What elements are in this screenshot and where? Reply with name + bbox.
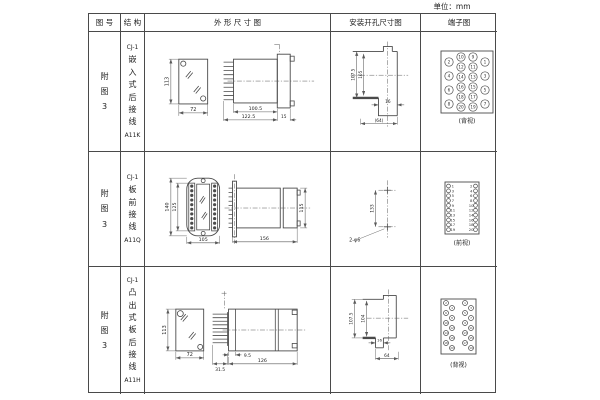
mounting-hole-icon — [201, 95, 206, 100]
terminal-pin — [474, 218, 478, 222]
terminal-number: 3 — [484, 73, 487, 78]
model-label: CJ-1 — [127, 44, 139, 51]
dim-label: 31.5 — [215, 367, 225, 373]
terminal-number: 11 — [469, 326, 473, 330]
terminal-diagram-a11h-cell: 2610141848121620159131737111519 (背视) — [421, 267, 497, 394]
terminal-number: 6 — [445, 311, 447, 315]
terminal-number: 5 — [484, 87, 487, 92]
dim-label: 9.5 — [244, 353, 251, 359]
header-outline-dims: 外 形 尺 寸 图 — [145, 14, 331, 32]
terminal-pin — [474, 227, 478, 231]
structure-cell: CJ-1 嵌入式后接线 A11K — [121, 32, 145, 152]
manual-page: 单位：mm 图 号 结 构 外 形 尺 寸 图 安装开孔尺寸图 端子图 附图3 … — [0, 0, 600, 400]
figure-no-cell: 附图3 — [89, 267, 121, 394]
terminal-pin — [447, 193, 451, 197]
mounting-drawing-a11q: 133 2-φ6 — [331, 152, 420, 267]
dim-label: 15 — [281, 114, 287, 120]
outline-drawing-a11h-cell: 113 72 9.5 31.5 — [145, 267, 331, 394]
header-figure-no: 图 号 — [89, 14, 121, 32]
dimension-table: 图 号 结 构 外 形 尺 寸 图 安装开孔尺寸图 端子图 附图3 CJ-1 嵌… — [88, 13, 496, 393]
terminal-number: 1 — [484, 59, 487, 64]
terminal-number: 16 — [450, 336, 454, 340]
dim-label: 104 — [361, 314, 367, 322]
terminal-pin — [474, 203, 478, 207]
terminal-number: 19 — [450, 227, 455, 232]
dim-label: 107.5 — [351, 68, 357, 80]
terminal-grid: 2468101214161820911131517191357 — [445, 52, 489, 110]
terminal-number: 17 — [463, 341, 467, 345]
model-label: CJ-1 — [127, 277, 139, 284]
mounting-hole-icon — [177, 311, 183, 317]
mounting-hole-icon — [181, 61, 186, 66]
view-label: (背视) — [459, 117, 476, 125]
dim-label: 72 — [190, 107, 196, 113]
mounting-hole-icon — [201, 231, 205, 235]
dim-label: 126 — [258, 358, 267, 364]
terminal-diagram-a11q: 1234567891011121314151617181920 (前视) — [421, 152, 497, 267]
header-structure: 结 构 — [121, 14, 145, 32]
dim-label: 140 — [165, 202, 171, 211]
terminal-diagram-a11k-cell: 2468101214161820911131517191357 (背视) — [421, 32, 497, 152]
dim-label: 115 — [299, 203, 305, 212]
dim-label: 107.5 — [349, 312, 355, 324]
terminal-number: 10 — [458, 54, 464, 59]
outline-drawing-a11k-cell: 113 72 100.5 122.5 15 — [145, 32, 331, 152]
outline-drawing-a11q-cell: 140 125 105 156 115 — [145, 152, 331, 267]
terminal-number: 7 — [484, 101, 487, 106]
terminal-pin — [447, 184, 451, 188]
mount-type-label: 板前接线 — [128, 184, 138, 234]
terminal-number: 15 — [469, 336, 473, 340]
dim-label: 72 — [187, 352, 193, 358]
terminal-number: 9 — [464, 321, 466, 325]
terminal-diagram-a11h: 2610141848121620159131737111519 (背视) — [421, 267, 497, 394]
dim-label: 105 — [199, 237, 208, 243]
terminal-number: 8 — [451, 316, 453, 320]
dim-label: 125 — [172, 202, 178, 211]
terminal-pin — [447, 188, 451, 192]
terminal-number: 12 — [450, 326, 454, 330]
outline-drawing-a11h: 113 72 9.5 31.5 — [145, 267, 330, 394]
terminal-number: 18 — [444, 341, 448, 345]
terminal-pin — [474, 208, 478, 212]
dim-label: 122.5 — [242, 114, 256, 120]
terminal-number: 15 — [470, 84, 476, 89]
figure-no: 附图3 — [100, 308, 110, 354]
terminal-number: 16 — [458, 84, 464, 89]
terminal-number: 14 — [458, 74, 464, 79]
terminal-number: 13 — [463, 331, 467, 335]
terminal-pin — [474, 222, 478, 226]
figure-no: 附图3 — [100, 69, 110, 115]
terminal-number: 2 — [445, 301, 447, 305]
dim-label: 113 — [162, 325, 168, 334]
terminal-number: 20 — [450, 346, 454, 350]
terminal-number: 4 — [448, 73, 451, 78]
terminal-number: 9 — [472, 54, 475, 59]
dim-label: 64 — [384, 353, 390, 359]
terminal-number: 2 — [448, 59, 451, 64]
dim-label: (64) — [375, 117, 384, 123]
type-code: A11K — [125, 132, 141, 139]
terminal-number: 12 — [458, 64, 464, 69]
structure-cell: CJ-1 板前接线 A11Q — [121, 152, 145, 267]
header-terminal-diagram: 端子图 — [421, 14, 497, 32]
terminal-number: 7 — [470, 316, 472, 320]
terminal-number: 6 — [448, 87, 451, 92]
terminal-number: 3 — [470, 306, 472, 310]
mounting-drawing-a11k: 107.5 105 16 (64) — [331, 32, 420, 152]
dim-label: 156 — [260, 236, 269, 242]
mounting-drawing-a11h: 107.5 104 16 64 — [331, 267, 420, 394]
terminal-pin — [447, 198, 451, 202]
terminal-diagram-a11q-cell: 1234567891011121314151617181920 (前视) — [421, 152, 497, 267]
outline-drawing-a11q: 140 125 105 156 115 — [145, 152, 330, 267]
terminal-number: 4 — [451, 306, 453, 310]
terminal-number: 10 — [444, 321, 448, 325]
terminal-diagram-a11k: 2468101214161820911131517191357 (背视) — [421, 32, 497, 152]
structure-cell: CJ-1 凸出式板后接线 A11H — [121, 267, 145, 394]
unit-note: 单位：mm — [408, 1, 496, 12]
figure-no-cell: 附图3 — [89, 32, 121, 152]
outline-drawing-a11k: 113 72 100.5 122.5 15 — [145, 32, 330, 152]
mounting-drawing-a11q-cell: 133 2-φ6 — [331, 152, 421, 267]
mount-type-label: 凸出式板后接线 — [128, 287, 138, 374]
view-label: (背视) — [450, 361, 467, 369]
type-code: A11Q — [124, 237, 140, 244]
terminal-pin — [474, 193, 478, 197]
terminal-number: 19 — [470, 104, 476, 109]
dim-label: 100.5 — [249, 106, 263, 112]
terminal-number: 18 — [458, 94, 464, 99]
terminal-number: 5 — [464, 311, 466, 315]
terminal-number: 13 — [470, 74, 476, 79]
mount-type-label: 嵌入式后接线 — [128, 54, 138, 128]
figure-no-cell: 附图3 — [89, 152, 121, 267]
terminal-number: 20 — [469, 227, 474, 232]
terminal-pin — [474, 188, 478, 192]
terminal-number: 11 — [470, 64, 476, 69]
terminal-number: 17 — [470, 94, 476, 99]
view-label: (前视) — [454, 239, 471, 247]
terminal-number: 1 — [464, 301, 466, 305]
terminal-grid: 1234567891011121314151617181920 — [447, 183, 478, 232]
mounting-drawing-a11k-cell: 107.5 105 16 (64) — [331, 32, 421, 152]
terminal-pin — [474, 184, 478, 188]
hole-note: 2-φ6 — [349, 237, 360, 243]
dim-label: 16 — [377, 337, 382, 342]
terminal-number: 8 — [448, 101, 451, 106]
dim-label: 16 — [385, 99, 391, 105]
dim-label: 113 — [164, 76, 170, 85]
mounting-hole-icon — [201, 178, 205, 182]
dim-label: 105 — [358, 70, 364, 78]
dim-label: 133 — [370, 204, 376, 213]
type-code: A11H — [124, 377, 140, 384]
model-label: CJ-1 — [127, 174, 139, 181]
terminal-pin — [474, 213, 478, 217]
mounting-hole-icon — [198, 344, 203, 349]
terminal-number: 20 — [458, 104, 464, 109]
header-mounting-dims: 安装开孔尺寸图 — [331, 14, 421, 32]
terminal-number: 19 — [469, 346, 473, 350]
terminal-pin — [474, 198, 478, 202]
terminal-grid: 2610141848121620159131737111519 — [444, 301, 474, 351]
mounting-drawing-a11h-cell: 107.5 104 16 64 — [331, 267, 421, 394]
terminal-number: 14 — [444, 331, 448, 335]
figure-no: 附图3 — [100, 186, 110, 232]
